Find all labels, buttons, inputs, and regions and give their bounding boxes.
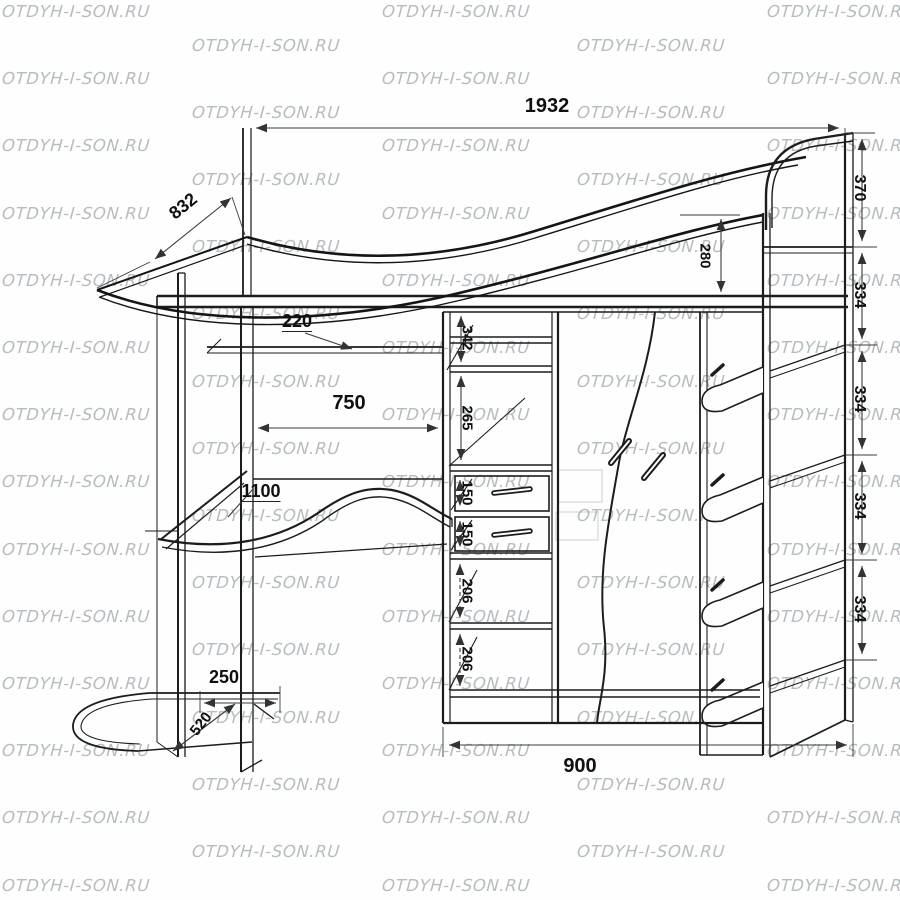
bed-rails: [97, 157, 806, 325]
dim-desk-clearance: 750: [332, 393, 365, 413]
dim-shelf-gap-2: 334: [851, 386, 867, 413]
dim-overall-width: 1932: [525, 96, 570, 116]
dim-rail-height: 280: [698, 243, 713, 268]
dim-cubby-206-bottom: 206: [460, 646, 475, 671]
dim-cubby-265: 265: [460, 405, 475, 430]
drawer-handles: [494, 489, 530, 535]
wall-shelf: [207, 339, 443, 353]
support-post: [241, 128, 262, 772]
dim-shelf-depth: 220: [282, 312, 312, 332]
dim-headboard-height: 370: [851, 175, 867, 202]
wardrobe: [556, 312, 663, 723]
dim-drawer-bottom: 150: [460, 521, 475, 546]
dim-desk-width: 1100: [241, 482, 280, 502]
right-shelf-unit: [763, 133, 853, 757]
furniture-technical-drawing: OTDYH-I-SON.RUOTDYH-I-SON.RUOTDYH-I-SON.…: [0, 0, 900, 900]
dim-tray-width: 250: [209, 668, 239, 686]
dim-drawer-top: 150: [460, 480, 475, 505]
dim-cubby-342: 342: [460, 325, 475, 350]
corner-shelves: [700, 312, 763, 755]
dim-base-width: 900: [563, 756, 596, 776]
left-wall-panel: [157, 273, 185, 757]
dim-shelf-gap-4: 334: [851, 596, 867, 623]
keyboard-tray: [73, 693, 280, 751]
dim-shelf-gap-1: 334: [851, 282, 867, 309]
loft-bed-drawing: [0, 0, 900, 900]
bed-platform: [157, 296, 848, 312]
dim-shelf-gap-3: 334: [851, 493, 867, 520]
desk: [145, 471, 452, 557]
headboard: [766, 133, 853, 230]
dim-cubby-206-top: 206: [460, 578, 475, 603]
